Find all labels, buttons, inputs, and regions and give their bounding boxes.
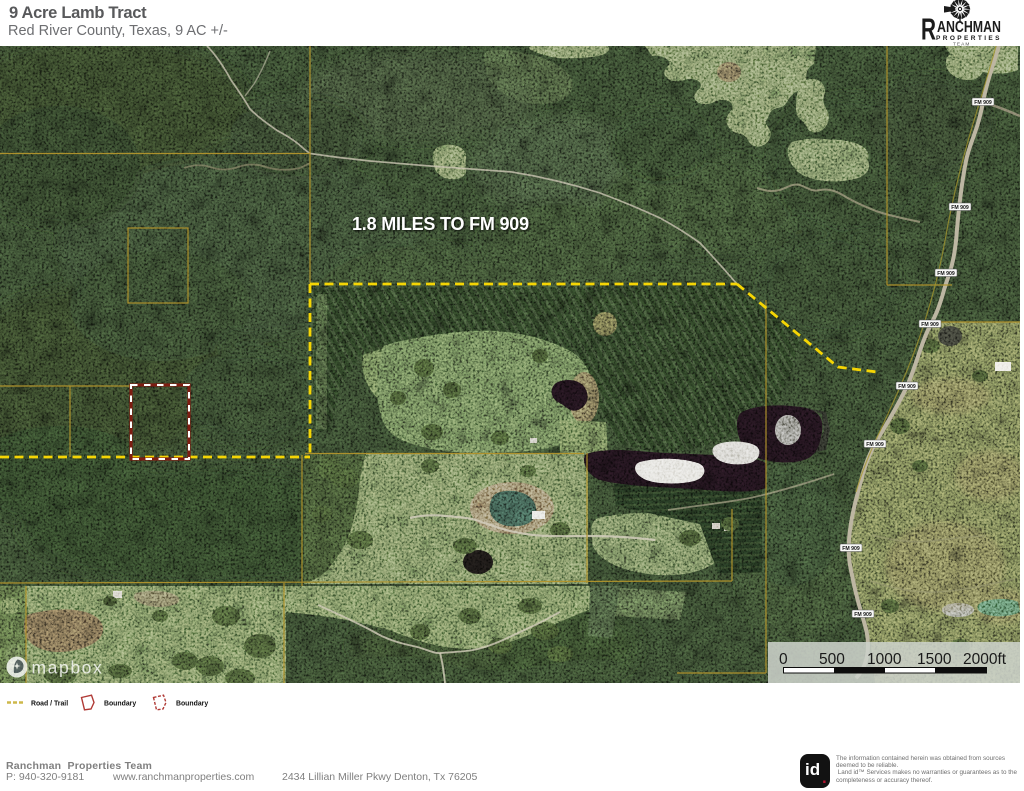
svg-text:FM 909: FM 909 xyxy=(866,442,884,448)
svg-text:FM 909: FM 909 xyxy=(974,100,992,106)
svg-text:Road / Trail: Road / Trail xyxy=(31,700,68,707)
svg-text:FM 909: FM 909 xyxy=(921,322,939,328)
svg-text:PROPERTIES: PROPERTIES xyxy=(936,35,1002,42)
svg-text:FM 909: FM 909 xyxy=(951,205,969,211)
svg-text:ANCHMAN: ANCHMAN xyxy=(937,19,1001,36)
svg-text:Boundary: Boundary xyxy=(176,700,208,707)
svg-text:FM 909: FM 909 xyxy=(842,546,860,552)
svg-text:0: 0 xyxy=(779,651,788,668)
svg-text:Boundary: Boundary xyxy=(104,700,136,707)
svg-text:FM 909: FM 909 xyxy=(937,271,955,277)
svg-text:500: 500 xyxy=(819,651,845,668)
svg-text:FM 909: FM 909 xyxy=(898,384,916,390)
svg-text:1500: 1500 xyxy=(917,651,952,668)
svg-text:2000ft: 2000ft xyxy=(963,651,1007,668)
svg-text:R: R xyxy=(921,12,936,47)
svg-text:1.8 MILES TO FM 909: 1.8 MILES TO FM 909 xyxy=(352,214,529,234)
svg-text:FM 909: FM 909 xyxy=(854,612,872,618)
svg-text:mapbox: mapbox xyxy=(32,658,104,678)
svg-text:1000: 1000 xyxy=(867,651,902,668)
